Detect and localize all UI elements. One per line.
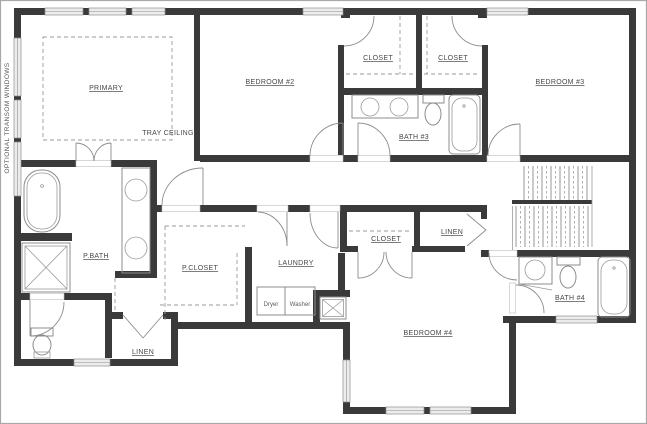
window: [343, 360, 350, 402]
stair-rail: [512, 200, 592, 204]
washer-label: Washer: [290, 302, 310, 308]
tray-ceiling-label: TRAY CEILING: [142, 130, 194, 137]
closet-b2-label: CLOSET: [363, 55, 393, 62]
bedroom3-label: BEDROOM #3: [536, 79, 585, 86]
window: [556, 316, 597, 323]
window: [430, 407, 471, 414]
bath4-label: BATH #4: [555, 295, 585, 302]
linen-hall-label: LINEN: [441, 229, 463, 236]
window: [487, 8, 528, 15]
transom-window: [14, 38, 21, 96]
window: [132, 8, 165, 15]
transom-note-label: OPTIONAL TRANSOM WINDOWS: [4, 62, 11, 173]
window: [386, 407, 424, 414]
bath3-label: BATH #3: [399, 134, 429, 141]
window: [303, 8, 343, 15]
window: [89, 8, 126, 15]
laundry-label: LAUNDRY: [278, 260, 313, 267]
bedroom2-label: BEDROOM #2: [246, 79, 295, 86]
bedroom4-label: BEDROOM #4: [404, 330, 453, 337]
closet-b4-label: CLOSET: [371, 236, 401, 243]
closet-b3-label: CLOSET: [438, 55, 468, 62]
pbath-label: P.BATH: [83, 253, 109, 260]
primary-label: PRIMARY: [89, 85, 123, 92]
transom-window: [14, 100, 21, 138]
floor-plan-drawing: PRIMARY TRAY CEILING BEDROOM #2 CLOSET C…: [0, 0, 647, 424]
pcloset-label: P.CLOSET: [182, 265, 219, 272]
transom-window: [14, 142, 21, 196]
window: [45, 8, 83, 15]
linen-suite-label: LINEN: [132, 349, 154, 356]
floor-plan: PRIMARY TRAY CEILING BEDROOM #2 CLOSET C…: [0, 0, 647, 424]
dryer-label: Dryer: [264, 302, 279, 308]
window: [74, 359, 110, 366]
